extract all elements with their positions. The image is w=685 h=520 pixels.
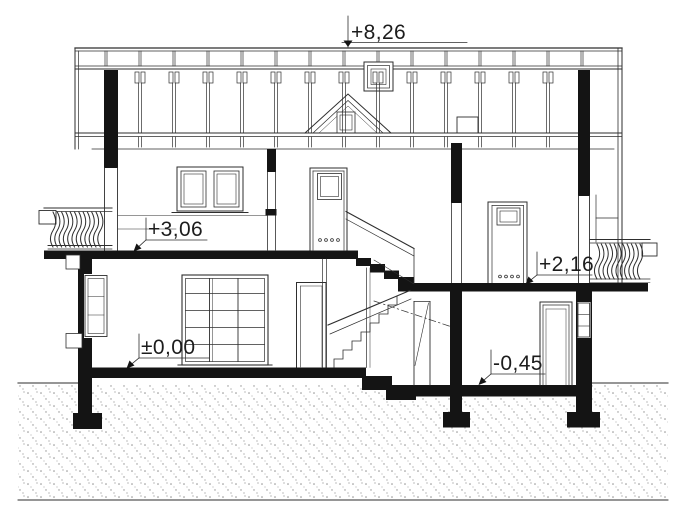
lower-ground-door — [540, 302, 572, 385]
ground-floor-door — [297, 283, 327, 368]
architectural-section-drawing: +8,26 +3,06 +2,16 ±0,00 -0,45 — [0, 0, 685, 520]
stair-hall-doorway — [414, 302, 430, 386]
first-floor-door-left — [310, 168, 347, 250]
attic-dormer — [303, 94, 391, 133]
chimney — [104, 70, 118, 158]
left-balcony — [39, 208, 112, 249]
level-label-mezzanine: +2,16 — [539, 254, 594, 275]
first-floor-window — [177, 167, 243, 211]
ground-soil — [18, 383, 668, 500]
level-label-lower-ground: -0,45 — [493, 353, 543, 374]
right-balcony — [590, 240, 657, 283]
attic-hatch-box — [457, 117, 478, 133]
roof-skylight — [364, 62, 393, 91]
attic-floor-structure — [75, 72, 622, 149]
mezzanine-door — [488, 202, 527, 283]
level-label-upper-floor: +3,06 — [148, 219, 203, 240]
level-label-ground-floor: ±0,00 — [141, 337, 195, 358]
level-label-ridge: +8,26 — [351, 22, 406, 43]
ground-floor-right-wall — [576, 287, 592, 413]
